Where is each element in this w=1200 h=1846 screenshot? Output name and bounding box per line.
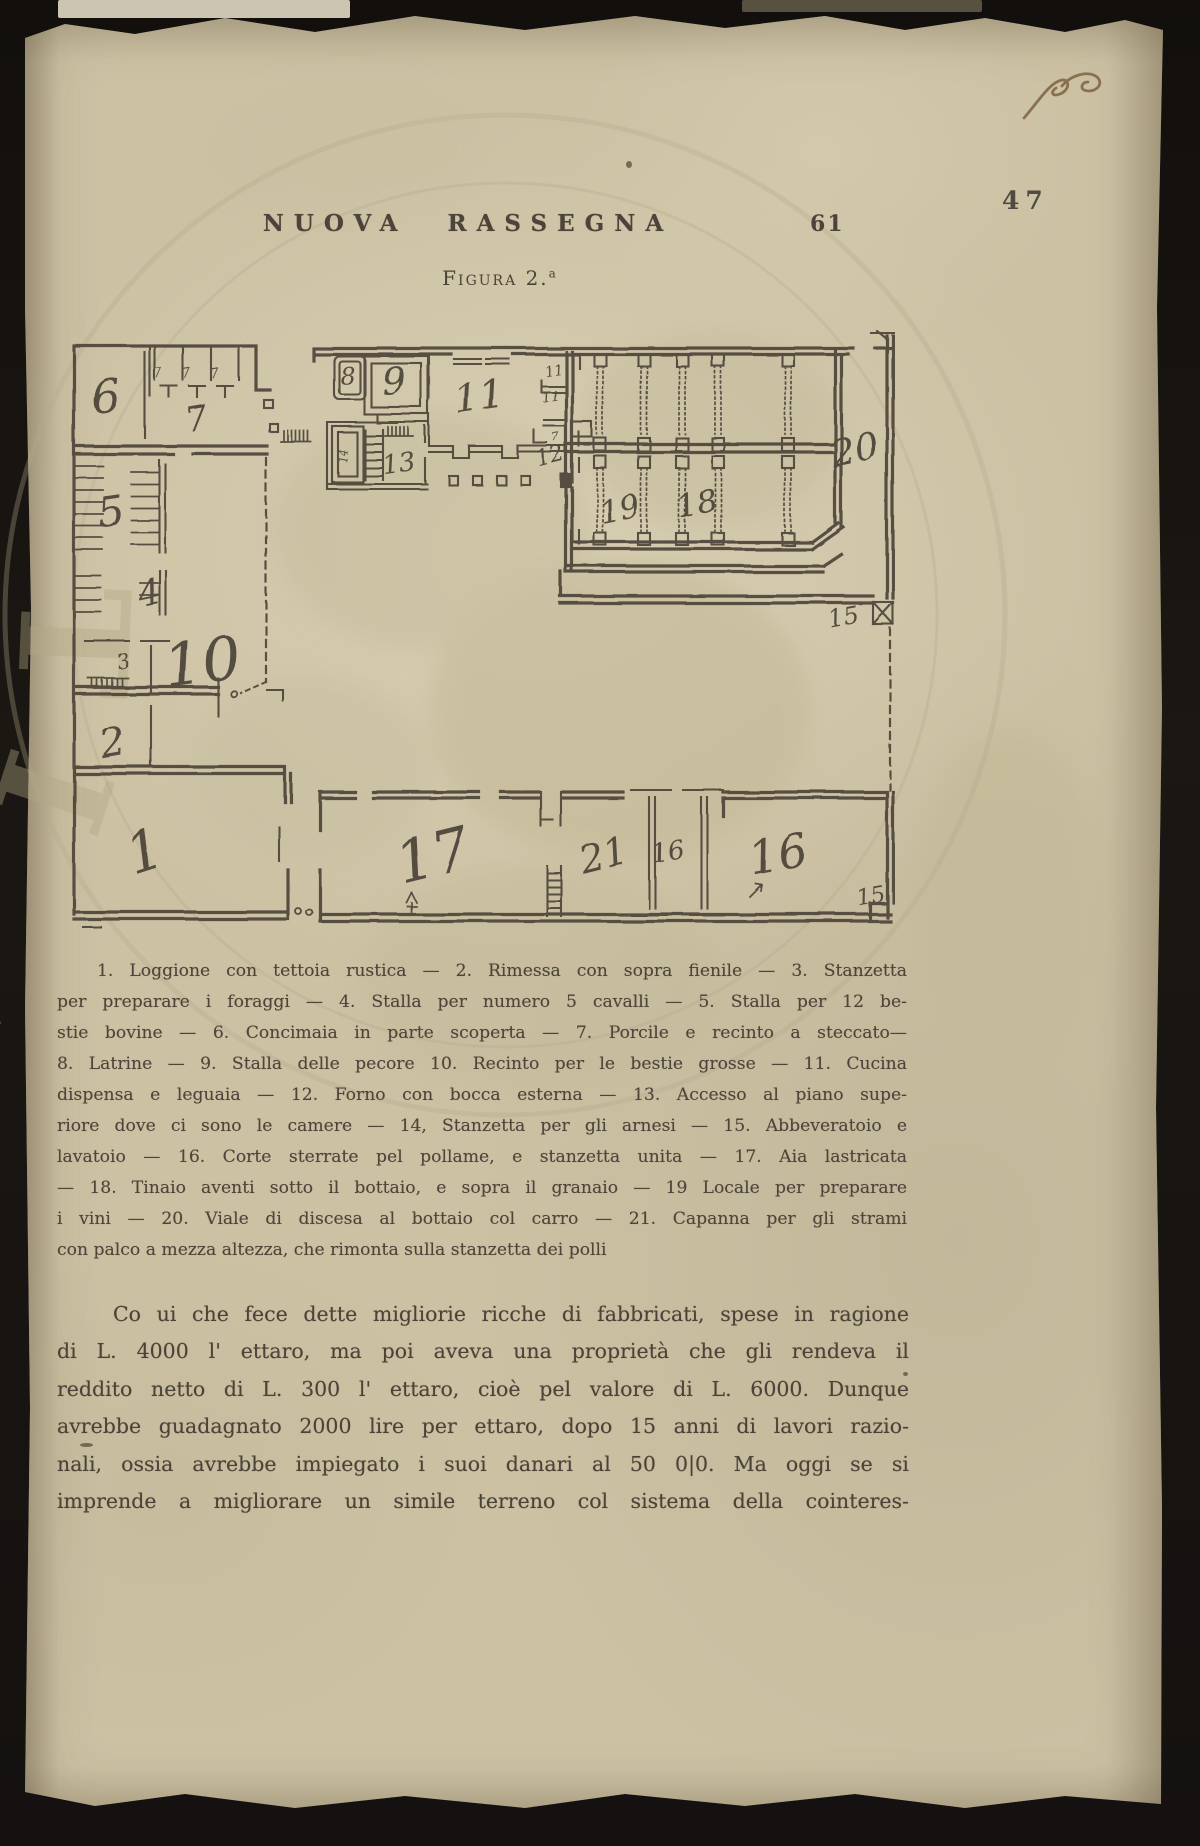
- room-label-18: 18: [673, 480, 721, 526]
- floor-plan-drawing: 6777754310218914131111117121918201517211…: [55, 330, 895, 950]
- room-label-1: 1: [118, 816, 172, 889]
- room-label-13: 13: [380, 447, 417, 481]
- figure-title: Figura 2.a: [380, 266, 620, 290]
- room-label-21: 21: [574, 828, 633, 883]
- caption-line: con palco a mezza altezza, che rimonta s…: [57, 1235, 907, 1266]
- room-label-11: 11: [541, 388, 561, 406]
- bodytext-line: imprende a migliorare un simile terreno …: [57, 1483, 909, 1520]
- room-label-11: 11: [544, 362, 564, 380]
- page-edge-sliver: [58, 0, 350, 18]
- caption-line: dispensa e leguaia — 12. Forno con bocca…: [57, 1080, 907, 1111]
- handwritten-mark: [1010, 66, 1130, 136]
- floor-plan-figure: 6777754310218914131111117121918201517211…: [55, 330, 895, 950]
- caption-line: stie bovine — 6. Concimaia in parte scop…: [57, 1018, 907, 1049]
- corner-number: 47: [1002, 186, 1049, 215]
- caption-line: 1. Loggione con tettoia rustica — 2. Rim…: [57, 956, 907, 987]
- bodytext-line: reddito netto di L. 300 l' ettaro, cioè …: [57, 1371, 909, 1408]
- room-label-5: 5: [94, 486, 127, 538]
- body-paragraph: Co ui che fece dette migliorie ricche di…: [57, 1296, 909, 1520]
- room-label-9: 9: [380, 358, 408, 404]
- room-label-11: 11: [451, 371, 508, 424]
- caption-line: i vini — 20. Viale di discesa al bottaio…: [57, 1204, 907, 1235]
- room-label-7: 7: [209, 365, 220, 382]
- journal-title: NUOVA RASSEGNA: [228, 210, 708, 237]
- bodytext-line: Co ui che fece dette migliorie ricche di…: [57, 1296, 909, 1333]
- room-label-7: 7: [153, 365, 164, 382]
- bodytext-line: avrebbe guadagnato 2000 lire per ettaro,…: [57, 1408, 909, 1445]
- page-number: 61: [810, 211, 845, 237]
- figure-caption: 1. Loggione con tettoia rustica — 2. Rim…: [57, 956, 907, 1266]
- courtyard-dashed-boundary: [266, 458, 890, 790]
- room-label-15: 15: [826, 601, 861, 634]
- scanned-page: TI PVBLICAE AVGENDA NUOVA RASSEGNA 61 47…: [0, 0, 1200, 1846]
- room-label-8: 8: [339, 362, 356, 391]
- room-label-3: 3: [115, 648, 132, 674]
- room-label-14: 14: [337, 449, 350, 463]
- figure-title-text: Figura 2.: [442, 266, 548, 290]
- room-label-19: 19: [596, 486, 644, 532]
- figure-title-superscript: a: [549, 266, 558, 280]
- room-label-12: 12: [534, 441, 567, 472]
- room-label-20: 20: [825, 423, 882, 476]
- room-label-10: 10: [160, 622, 245, 702]
- bodytext-line: nali, ossia avrebbe impiegato i suoi dan…: [57, 1446, 909, 1483]
- ink-speck: [626, 161, 632, 168]
- room-label-2: 2: [95, 718, 129, 768]
- ink-speck: [903, 1372, 908, 1376]
- room-label-16: 16: [649, 834, 687, 869]
- room-label-16: 16: [745, 823, 812, 886]
- room-label-7: 7: [182, 398, 211, 441]
- room-number-labels: 6777754310218914131111117121918201517211…: [89, 358, 887, 911]
- room-label-7: 7: [181, 365, 192, 382]
- caption-line: 8. Latrine — 9. Stalla delle pecore 10. …: [57, 1049, 907, 1080]
- caption-line: lavatoio — 16. Corte sterrate pel pollam…: [57, 1142, 907, 1173]
- caption-line: — 18. Tinaio aventi sotto il bottaio, e …: [57, 1173, 907, 1204]
- room-label-15: 15: [855, 882, 887, 911]
- caption-line: riore dove ci sono le camere — 14, Stanz…: [57, 1111, 907, 1142]
- caption-line: per preparare i foraggi — 4. Stalla per …: [57, 987, 907, 1018]
- room-label-17: 17: [389, 814, 477, 898]
- page-edge-sliver-right: [742, 0, 982, 12]
- bodytext-line: di L. 4000 l' ettaro, ma poi aveva una p…: [57, 1333, 909, 1370]
- ink-speck: [80, 1443, 93, 1447]
- room-label-6: 6: [89, 368, 123, 424]
